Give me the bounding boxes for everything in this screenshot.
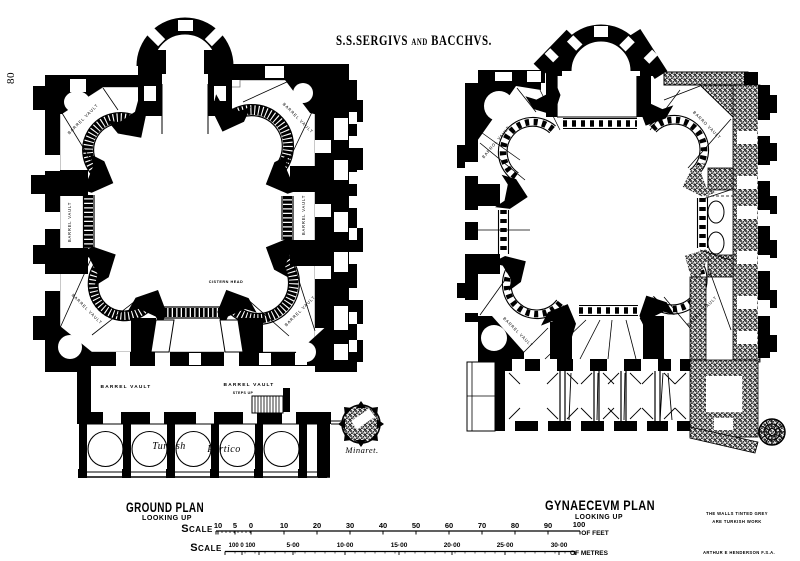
svg-text:BARREL VAULT: BARREL VAULT	[224, 382, 275, 388]
svg-text:10·00: 10·00	[337, 542, 354, 549]
svg-text:80: 80	[5, 72, 17, 84]
svg-text:GYNAECEVM PLAN: GYNAECEVM PLAN	[545, 498, 655, 513]
svg-text:THE WALLS TINTED GREY: THE WALLS TINTED GREY	[706, 511, 768, 516]
svg-text:BARREL VAULT: BARREL VAULT	[101, 384, 152, 390]
svg-text:OF FEET: OF FEET	[581, 530, 608, 537]
svg-text:30: 30	[346, 521, 354, 530]
svg-text:50: 50	[412, 521, 420, 530]
svg-text:BARREL VAULT: BARREL VAULT	[67, 202, 72, 242]
svg-text:LOOKING UP: LOOKING UP	[142, 515, 192, 522]
svg-text:15·00: 15·00	[391, 542, 408, 549]
svg-text:ARTHUR E HENDERSON F.S.A.: ARTHUR E HENDERSON F.S.A.	[703, 550, 775, 555]
svg-text:10: 10	[214, 521, 222, 530]
svg-text:30·00: 30·00	[551, 542, 568, 549]
svg-text:70: 70	[478, 521, 486, 530]
svg-text:5·00: 5·00	[286, 542, 299, 549]
svg-text:OF METRES: OF METRES	[570, 550, 609, 557]
svg-text:GROUND PLAN: GROUND PLAN	[126, 500, 204, 515]
svg-text:60: 60	[445, 521, 453, 530]
svg-text:0: 0	[249, 521, 253, 530]
svg-text:80: 80	[511, 521, 519, 530]
svg-text:100: 100	[573, 520, 586, 529]
svg-text:40: 40	[379, 521, 387, 530]
svg-text:Portico: Portico	[206, 444, 241, 455]
svg-text:25·00: 25·00	[497, 542, 514, 549]
svg-text:SCALE: SCALE	[181, 523, 213, 535]
svg-text:BARREL VAULT: BARREL VAULT	[301, 195, 306, 235]
svg-text:CISTERN HEAD: CISTERN HEAD	[209, 280, 243, 284]
svg-text:20: 20	[313, 521, 321, 530]
svg-text:STEPS UP: STEPS UP	[233, 391, 254, 395]
svg-text:20·00: 20·00	[444, 542, 461, 549]
svg-text:Turkish: Turkish	[152, 441, 186, 452]
svg-text:90: 90	[544, 521, 552, 530]
svg-text:ARE TURKISH WORK: ARE TURKISH WORK	[712, 519, 761, 524]
svg-text:10: 10	[280, 521, 288, 530]
svg-text:5: 5	[233, 521, 237, 530]
svg-text:SCALE: SCALE	[190, 542, 222, 554]
svg-text:100 0 100: 100 0 100	[229, 543, 256, 549]
svg-text:Minaret.: Minaret.	[344, 445, 378, 455]
